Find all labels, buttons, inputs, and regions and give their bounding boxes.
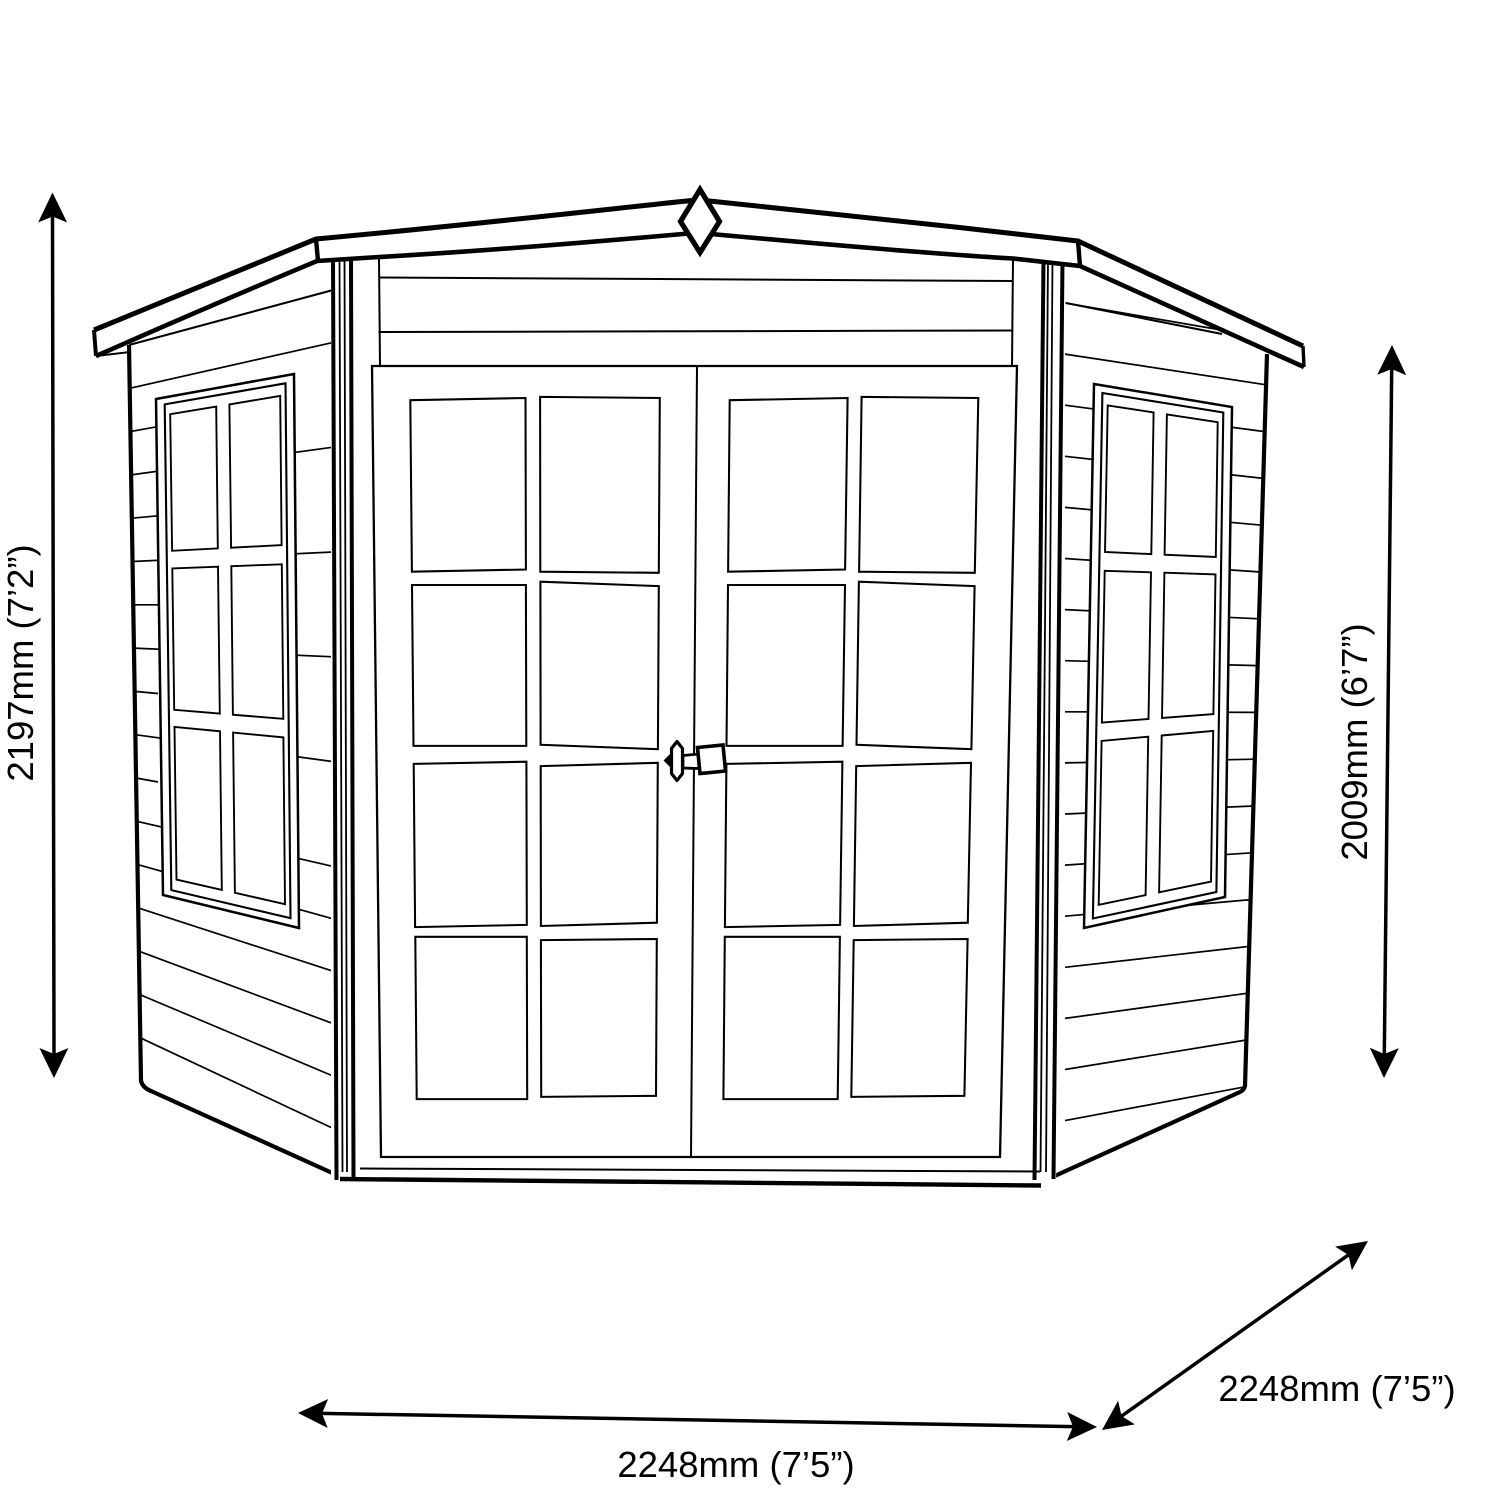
svg-text:2248mm (7’5”): 2248mm (7’5”) [1218,1368,1455,1409]
svg-text:2009mm (6’7”): 2009mm (6’7”) [1334,623,1375,860]
svg-text:2197mm (7’2”): 2197mm (7’2”) [0,544,41,781]
svg-text:2248mm (7’5”): 2248mm (7’5”) [617,1444,854,1485]
